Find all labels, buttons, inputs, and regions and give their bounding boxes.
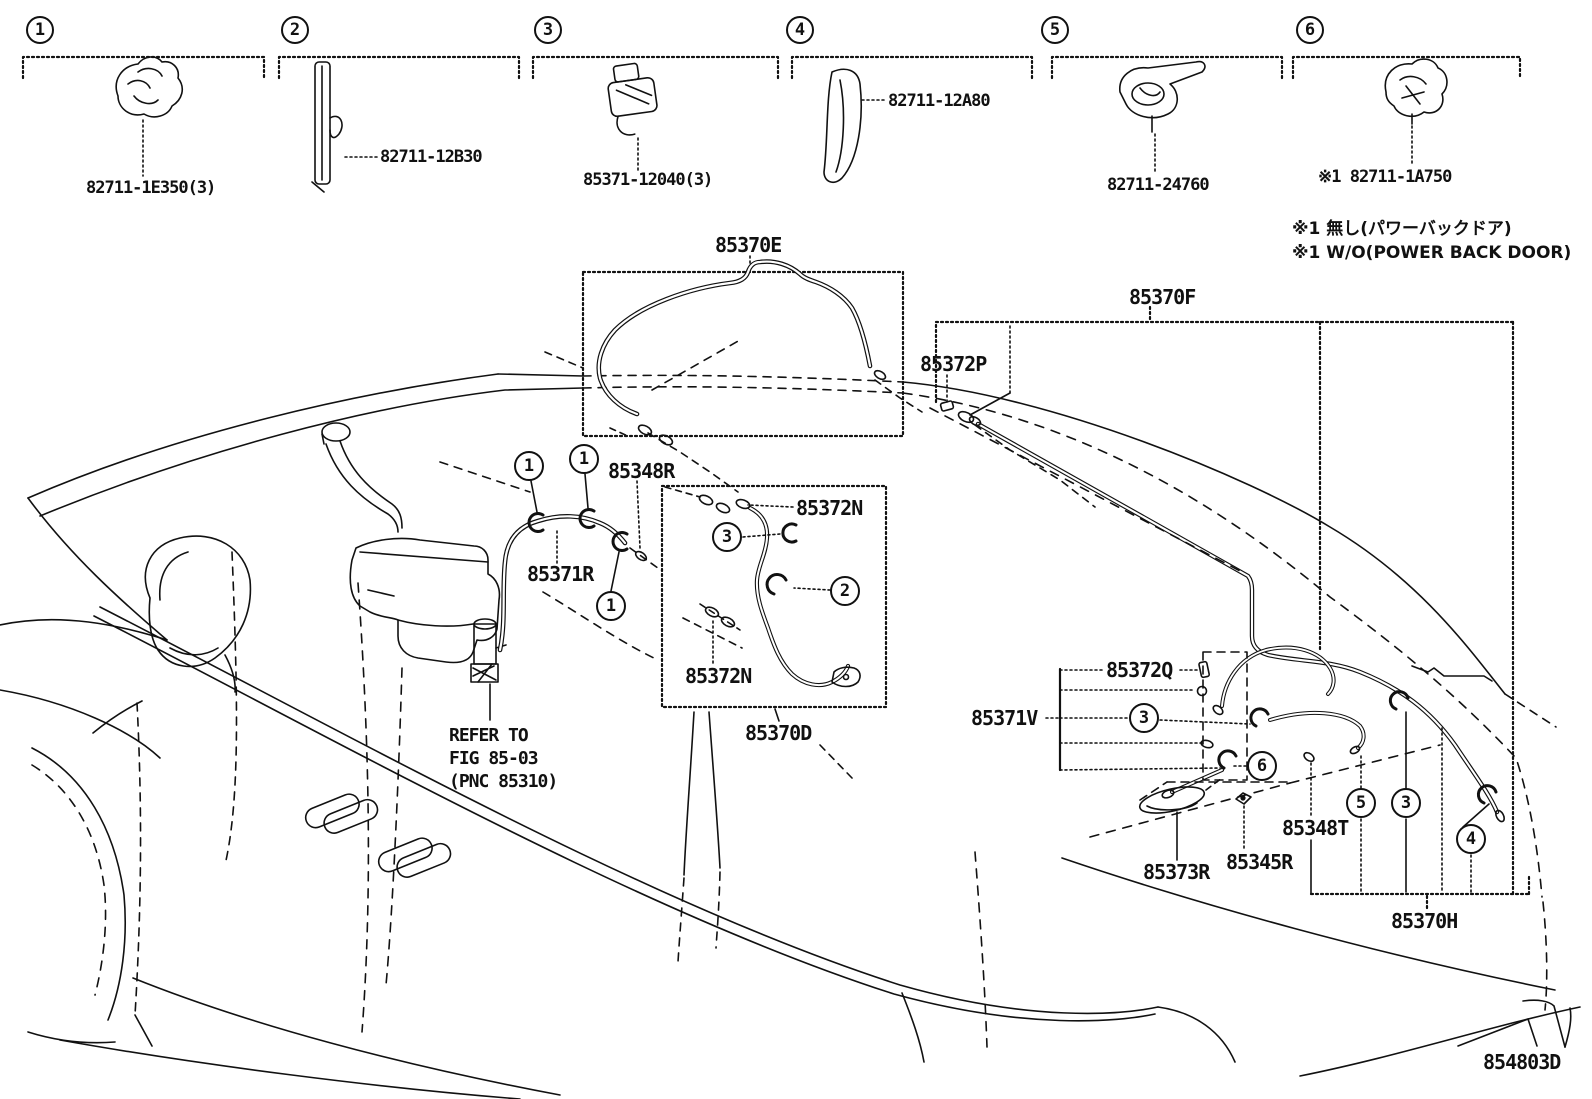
clip-3-glyph — [605, 61, 660, 137]
legend-part-2: 82711-12B30 — [380, 149, 482, 166]
legend-badge-4: 4 — [786, 16, 814, 44]
clip-6-glyph — [1385, 59, 1447, 164]
part-label-85348t: 85348T — [1282, 818, 1348, 838]
legend-part-5: 82711-24760 — [1107, 177, 1209, 194]
legend-part-3: 85371-12040(3) — [583, 172, 712, 189]
legend-badge-3: 3 — [534, 16, 562, 44]
part-label-85370h: 85370H — [1391, 911, 1457, 931]
refer-note-line1: REFER TO — [449, 724, 557, 747]
callout-clip-1b: 1 — [569, 444, 599, 474]
clip-1-glyph — [116, 57, 182, 176]
part-label-85373r: 85373R — [1143, 862, 1209, 882]
refer-note-line2: FIG 85-03 — [449, 747, 557, 770]
diagram-line-art — [0, 0, 1592, 1099]
callout-clip-5: 5 — [1346, 788, 1376, 818]
legend-part-6: ※1 82711-1A750 — [1318, 169, 1451, 186]
part-label-85372p: 85372P — [920, 354, 986, 374]
legend-badge-5: 5 — [1041, 16, 1069, 44]
callout-clip-1a: 1 — [514, 451, 544, 481]
note-en: ※1 W/O(POWER BACK DOOR) — [1292, 245, 1571, 262]
rear-label-leaders — [1177, 712, 1489, 893]
part-label-85370e: 85370E — [715, 235, 781, 255]
note-jp: ※1 無し(パワーバックドア) — [1292, 221, 1512, 238]
rear-washer-parts-diagram: 1 2 3 4 5 6 82711-1E350(3) 82711-12B30 8… — [0, 0, 1592, 1099]
callout-clip-4: 4 — [1456, 824, 1486, 854]
legend-badge-6: 6 — [1296, 16, 1324, 44]
legend-badge-2: 2 — [281, 16, 309, 44]
part-label-85371r: 85371R — [527, 564, 593, 584]
legend-part-4: 82711-12A80 — [888, 93, 990, 110]
legend-badge-1: 1 — [26, 16, 54, 44]
part-label-85372q: 85372Q — [1106, 660, 1172, 680]
callout-clip-3a: 3 — [712, 522, 742, 552]
clip-4-glyph — [824, 69, 885, 182]
rear-gate-parts — [1046, 648, 1364, 819]
callout-clip-3b: 3 — [1129, 703, 1159, 733]
part-label-85371v: 85371V — [971, 708, 1037, 728]
part-label-85348r: 85348R — [608, 461, 674, 481]
bracket-85370f — [936, 307, 1513, 894]
callout-clip-2: 2 — [830, 576, 860, 606]
box-85370e — [583, 256, 922, 492]
washer-reservoir — [322, 423, 506, 682]
callout-clip-6: 6 — [1247, 751, 1277, 781]
bracket-85370h — [1311, 875, 1529, 909]
clip-5-glyph — [1120, 62, 1205, 174]
drawing-number: 854803D — [1483, 1052, 1560, 1072]
refer-note-line3: (PNC 85310) — [449, 770, 557, 793]
legend-part-1: 82711-1E350(3) — [86, 180, 215, 197]
part-label-85370d: 85370D — [745, 723, 811, 743]
part-label-85372n-bottom: 85372N — [685, 666, 751, 686]
callout-clip-3c: 3 — [1391, 788, 1421, 818]
part-label-85370f: 85370F — [1129, 287, 1195, 307]
refer-note: REFER TO FIG 85-03 (PNC 85310) — [449, 724, 557, 793]
part-label-85345r: 85345R — [1226, 852, 1292, 872]
clip-2-glyph — [312, 62, 377, 192]
parts-85372p — [940, 323, 1095, 507]
callout-clip-1c: 1 — [596, 591, 626, 621]
part-label-85372n-top: 85372N — [796, 498, 862, 518]
legend-brackets — [23, 57, 1520, 78]
